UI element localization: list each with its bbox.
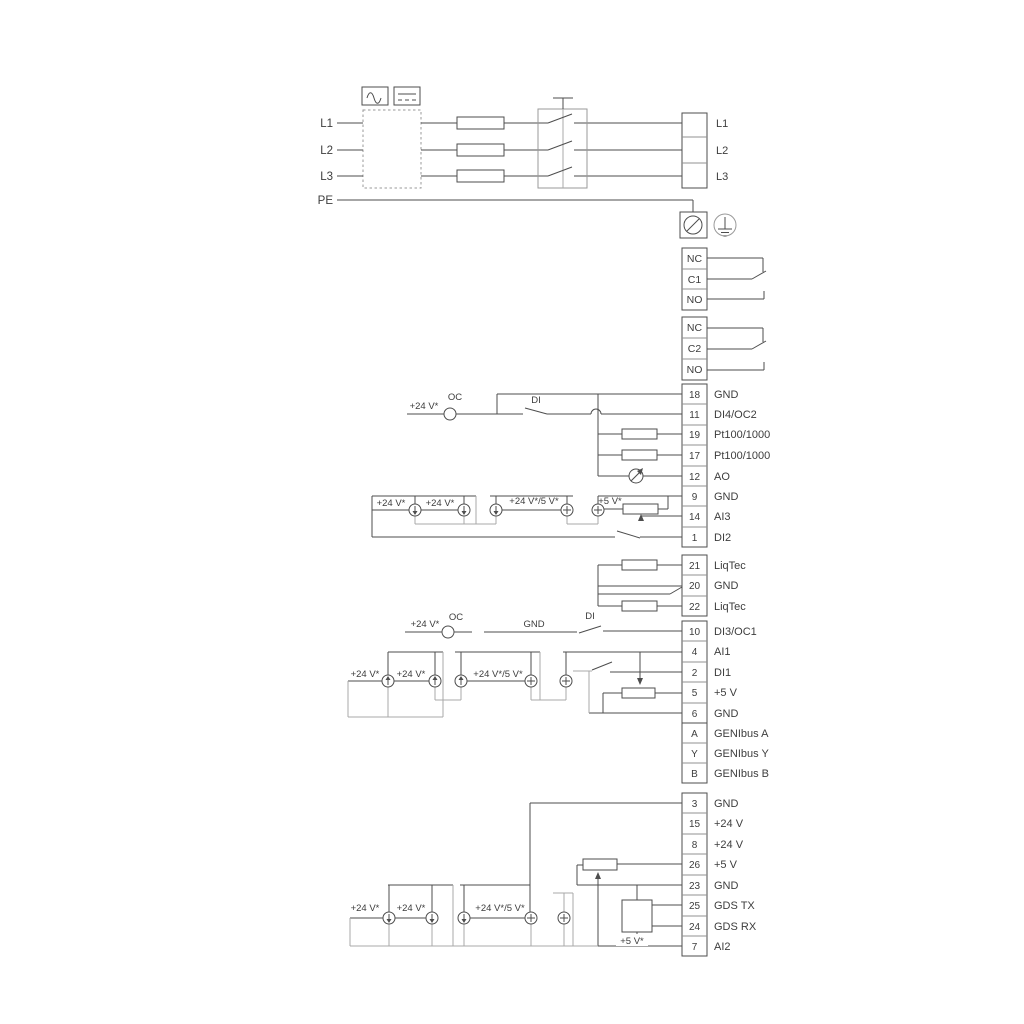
wire-hop <box>591 409 601 414</box>
potentiometer <box>622 688 655 698</box>
terminal-label: +5 V <box>714 859 738 871</box>
annotation-di: DI <box>585 611 595 622</box>
signal-source-icon <box>525 675 537 687</box>
power-wires <box>337 123 693 212</box>
open-collector-icon <box>442 626 454 638</box>
relay2-nc-label: NC <box>687 322 703 334</box>
terminal-label: GND <box>714 580 739 592</box>
input-label-pe: PE <box>318 195 334 207</box>
signal-source-icon <box>558 912 570 924</box>
terminal-label: DI2 <box>714 532 731 544</box>
pe-gland <box>680 212 707 238</box>
terminal-label: GND <box>714 798 739 810</box>
terminal-number: 26 <box>689 860 701 871</box>
terminal-label: +24 V <box>714 839 744 851</box>
terminal-number: 25 <box>689 901 701 912</box>
terminal-label: LiqTec <box>714 560 746 572</box>
terminal-number: 7 <box>692 942 698 953</box>
transmitter-2wire-icon <box>382 675 394 687</box>
gds-sensor-box <box>622 900 652 932</box>
annotation-di: DI <box>531 395 541 406</box>
terminal-number: 4 <box>692 647 698 658</box>
terminal-strip-genibus: A Y B GENIbus A GENIbus Y GENIbus B <box>682 723 769 783</box>
terminal-label: GDS TX <box>714 900 755 912</box>
transmitter-2wire-icon <box>490 504 502 516</box>
mains-terminal-strip: L1 L2 L3 <box>682 113 728 188</box>
annotation-5v: +5 V* <box>598 496 622 507</box>
terminal-label: GENIbus A <box>714 728 769 740</box>
liqtec-sensor-wires <box>598 565 682 606</box>
terminal-label: Pt100/1000 <box>714 429 770 441</box>
terminal-label: DI1 <box>714 667 731 679</box>
annotation-5v: +5 V* <box>620 936 644 947</box>
terminal-label: LiqTec <box>714 601 746 613</box>
transmitter-2wire-icon <box>458 912 470 924</box>
potentiometer-wiper-arrow <box>637 678 643 685</box>
liqtec-sensor-icon <box>622 560 657 570</box>
terminal-number: 15 <box>689 819 701 830</box>
terminal-number: 5 <box>692 688 698 699</box>
annotation-24v-5v: +24 V*/5 V* <box>509 496 559 507</box>
terminal-number: 24 <box>689 922 701 933</box>
potentiometer <box>583 859 617 870</box>
pt100-resistor-icon <box>622 429 657 439</box>
signal-source-icon <box>561 504 573 516</box>
annotation-24v: +24 V* <box>377 498 406 509</box>
annotation-24v: +24 V* <box>351 903 380 914</box>
terminal-number: 2 <box>692 668 698 679</box>
input-label-l2: L2 <box>320 145 333 157</box>
relay-1: NC C1 NO <box>682 248 766 310</box>
annotation-24v: +24 V* <box>397 669 426 680</box>
digital-input-3-circuit: +24 V* OC GND DI <box>405 611 682 638</box>
signal-source-icon <box>560 675 572 687</box>
terminal-number: 21 <box>689 561 701 572</box>
terminal-number: 9 <box>692 492 698 503</box>
terminal-label: +24 V <box>714 818 744 830</box>
terminal-strip-io3: 3 15 8 26 23 25 24 7 GND +24 V +24 V +5 … <box>682 793 757 956</box>
transmitter-2wire-icon <box>409 504 421 516</box>
transmitter-2wire-icon <box>426 912 438 924</box>
annotation-24v: +24 V* <box>410 401 439 412</box>
output-label-l1: L1 <box>716 118 728 130</box>
annotation-oc: OC <box>449 612 463 623</box>
input-label-l3: L3 <box>320 171 333 183</box>
main-switch <box>538 98 587 188</box>
dc-symbol-icon <box>394 87 420 105</box>
analog-output-meter-icon <box>629 468 643 483</box>
terminal-label: AI3 <box>714 511 731 523</box>
relay2-contact <box>707 328 766 370</box>
transmitter-2wire-icon <box>455 675 467 687</box>
relay1-c1-label: C1 <box>688 274 702 286</box>
ai1-sensor-options-circuit: +24 V* +24 V* +24 V*/5 V* <box>348 652 682 717</box>
terminal-strip-io1: 18 11 19 17 12 9 14 1 GND DI4/OC2 Pt100/… <box>682 384 770 547</box>
terminal-label: GENIbus B <box>714 768 769 780</box>
terminal-number: 23 <box>689 881 701 892</box>
transmitter-2wire-icon <box>383 912 395 924</box>
terminal-label: GENIbus Y <box>714 748 769 760</box>
terminal-label: GND <box>714 880 739 892</box>
terminal-number: 22 <box>689 602 701 613</box>
liqtec-sensor-icon <box>622 601 657 611</box>
ai2-sensor-options-circuit: +24 V* +24 V* +24 V*/5 V* +5 V* <box>350 803 682 947</box>
relay1-nc-label: NC <box>687 253 703 265</box>
annotation-24v: +24 V* <box>426 498 455 509</box>
terminal-number: 18 <box>689 390 701 401</box>
terminal-label: GND <box>714 491 739 503</box>
terminal-label: AI2 <box>714 941 731 953</box>
earth-icon <box>714 214 736 236</box>
annotation-24v-5v: +24 V*/5 V* <box>473 669 523 680</box>
potentiometer-wiper-arrow <box>638 514 644 521</box>
rfi-filter-box <box>363 110 421 188</box>
relay1-contact <box>707 258 766 299</box>
wiring-diagram-canvas: L1 L2 L3 PE L1 L2 L3 <box>0 0 1024 1024</box>
terminal-number: 17 <box>689 451 701 462</box>
terminal-number: A <box>691 729 698 740</box>
annotation-oc: OC <box>448 392 462 403</box>
terminal-number: 8 <box>692 840 698 851</box>
relay1-no-label: NO <box>687 294 703 306</box>
output-label-l2: L2 <box>716 145 728 157</box>
ai3-sensor-options-circuit: +24 V* +24 V* +24 V*/5 V* +5 V* <box>372 496 682 538</box>
fuse-l2 <box>457 144 504 156</box>
terminal-strip-io2: 10 4 2 5 6 DI3/OC1 AI1 DI1 +5 V GND <box>682 621 757 723</box>
terminal-number: 6 <box>692 709 698 720</box>
terminal-number: 1 <box>692 533 698 544</box>
annotation-24v: +24 V* <box>397 903 426 914</box>
annotation-24v-5v: +24 V*/5 V* <box>475 903 525 914</box>
terminal-number: 10 <box>689 627 701 638</box>
terminal-label: +5 V <box>714 687 738 699</box>
relay2-no-label: NO <box>687 364 703 376</box>
terminal-number: 19 <box>689 430 701 441</box>
transmitter-2wire-icon <box>429 675 441 687</box>
annotation-24v: +24 V* <box>351 669 380 680</box>
pt100-resistor-icon <box>622 450 657 460</box>
potentiometer <box>623 504 658 514</box>
terminal-label: AO <box>714 471 730 483</box>
terminal-label: GDS RX <box>714 921 757 933</box>
terminal-number: 14 <box>689 512 701 523</box>
digital-input-4-circuit: +24 V* OC DI <box>407 392 682 483</box>
terminal-number: 12 <box>689 472 701 483</box>
terminal-number: Y <box>691 749 698 760</box>
relay-2: NC C2 NO <box>682 317 766 380</box>
potentiometer-wiper-arrow <box>595 872 601 879</box>
terminal-label: Pt100/1000 <box>714 450 770 462</box>
terminal-number: 3 <box>692 799 698 810</box>
terminal-label: AI1 <box>714 646 731 658</box>
annotation-24v: +24 V* <box>411 619 440 630</box>
output-label-l3: L3 <box>716 171 728 183</box>
terminal-label: DI3/OC1 <box>714 626 757 638</box>
terminal-label: GND <box>714 389 739 401</box>
fuse-l3 <box>457 170 504 182</box>
terminal-strip-liqtec: 21 20 22 LiqTec GND LiqTec <box>598 555 746 616</box>
terminal-label: GND <box>714 708 739 720</box>
relay2-c2-label: C2 <box>688 343 702 355</box>
annotation-gnd: GND <box>523 619 544 630</box>
ac-symbol-icon <box>362 87 388 105</box>
transmitter-2wire-icon <box>458 504 470 516</box>
signal-source-icon <box>525 912 537 924</box>
fuse-l1 <box>457 117 504 129</box>
open-collector-icon <box>444 408 456 420</box>
input-label-l1: L1 <box>320 118 333 130</box>
terminal-number: 11 <box>689 410 700 421</box>
terminal-number: 20 <box>689 581 701 592</box>
wiring-diagram: L1 L2 L3 PE L1 L2 L3 <box>0 0 1024 1024</box>
power-input-section: L1 L2 L3 PE L1 L2 L3 <box>318 87 736 238</box>
terminal-number: B <box>691 769 698 780</box>
terminal-label: DI4/OC2 <box>714 409 757 421</box>
